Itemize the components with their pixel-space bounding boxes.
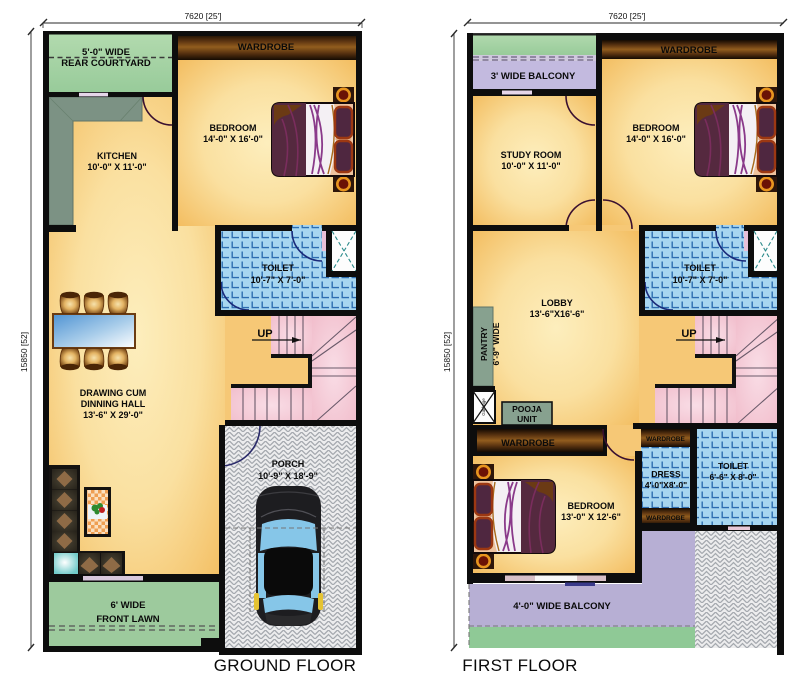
svg-text:3' WIDE BALCONY: 3' WIDE BALCONY bbox=[491, 71, 576, 82]
svg-text:UP: UP bbox=[681, 328, 696, 340]
svg-text:GROUND FLOOR: GROUND FLOOR bbox=[214, 656, 356, 675]
svg-text:6'-6" X 8'-0": 6'-6" X 8'-0" bbox=[709, 472, 756, 482]
svg-text:7620 [25']: 7620 [25'] bbox=[184, 11, 221, 21]
svg-text:FIRST FLOOR: FIRST FLOOR bbox=[462, 656, 577, 675]
svg-text:UP: UP bbox=[257, 328, 272, 340]
svg-text:10'-7" X 7'-0": 10'-7" X 7'-0" bbox=[251, 275, 306, 285]
svg-text:POOJA: POOJA bbox=[512, 404, 542, 414]
svg-text:WARDROBE: WARDROBE bbox=[501, 438, 555, 448]
svg-text:Garbage: Garbage bbox=[481, 398, 486, 416]
svg-text:7620 [25']: 7620 [25'] bbox=[608, 11, 645, 21]
svg-text:6' WIDE: 6' WIDE bbox=[111, 600, 146, 611]
svg-text:TOILET: TOILET bbox=[684, 263, 716, 273]
svg-text:WARDROBE: WARDROBE bbox=[646, 515, 685, 522]
svg-text:PANTRY: PANTRY bbox=[479, 327, 489, 361]
svg-text:13'-6"X16'-6": 13'-6"X16'-6" bbox=[530, 309, 585, 319]
svg-text:STUDY ROOM: STUDY ROOM bbox=[501, 150, 562, 160]
svg-text:13'-6" X 29'-0": 13'-6" X 29'-0" bbox=[83, 410, 143, 420]
svg-text:10'-7" X 7'-0": 10'-7" X 7'-0" bbox=[673, 275, 728, 285]
svg-text:KITCHEN: KITCHEN bbox=[97, 151, 137, 161]
svg-text:DINNING HALL: DINNING HALL bbox=[81, 399, 146, 409]
svg-text:FRONT LAWN: FRONT LAWN bbox=[96, 614, 159, 625]
svg-text:WARDROBE: WARDROBE bbox=[238, 42, 294, 53]
svg-text:15850 [52]: 15850 [52] bbox=[442, 332, 452, 372]
svg-text:TOILET: TOILET bbox=[262, 263, 294, 273]
svg-text:UNIT: UNIT bbox=[517, 414, 538, 424]
svg-text:10'-9" X 18'-9": 10'-9" X 18'-9" bbox=[258, 471, 318, 481]
svg-text:WARDROBE: WARDROBE bbox=[646, 436, 685, 443]
svg-text:4'-0" WIDE BALCONY: 4'-0" WIDE BALCONY bbox=[513, 601, 611, 612]
svg-text:REAR COURTYARD: REAR COURTYARD bbox=[61, 58, 151, 69]
svg-text:WARDROBE: WARDROBE bbox=[661, 45, 717, 56]
svg-text:15850 [52]: 15850 [52] bbox=[19, 332, 29, 372]
svg-text:13'-0" X 12'-6": 13'-0" X 12'-6" bbox=[561, 512, 621, 522]
svg-text:DRAWING CUM: DRAWING CUM bbox=[80, 388, 147, 398]
svg-text:DRESS: DRESS bbox=[651, 469, 681, 479]
svg-text:BEDROOM: BEDROOM bbox=[568, 501, 615, 511]
svg-text:5'-0" WIDE: 5'-0" WIDE bbox=[82, 47, 130, 58]
svg-text:14'-0" X 16'-0": 14'-0" X 16'-0" bbox=[626, 134, 686, 144]
svg-text:LOBBY: LOBBY bbox=[541, 298, 573, 308]
svg-text:PORCH: PORCH bbox=[272, 459, 305, 469]
svg-text:BEDROOM: BEDROOM bbox=[633, 123, 680, 133]
svg-text:10'-0" X 11'-0": 10'-0" X 11'-0" bbox=[87, 162, 146, 172]
svg-text:4'-0"X8'-0": 4'-0"X8'-0" bbox=[645, 480, 687, 490]
svg-text:6'-9" WIDE: 6'-9" WIDE bbox=[491, 322, 501, 365]
svg-text:BEDROOM: BEDROOM bbox=[210, 123, 257, 133]
svg-text:10'-0" X 11'-0": 10'-0" X 11'-0" bbox=[501, 161, 560, 171]
svg-text:TOILET: TOILET bbox=[718, 461, 749, 471]
svg-text:14'-0" X 16'-0": 14'-0" X 16'-0" bbox=[203, 134, 263, 144]
